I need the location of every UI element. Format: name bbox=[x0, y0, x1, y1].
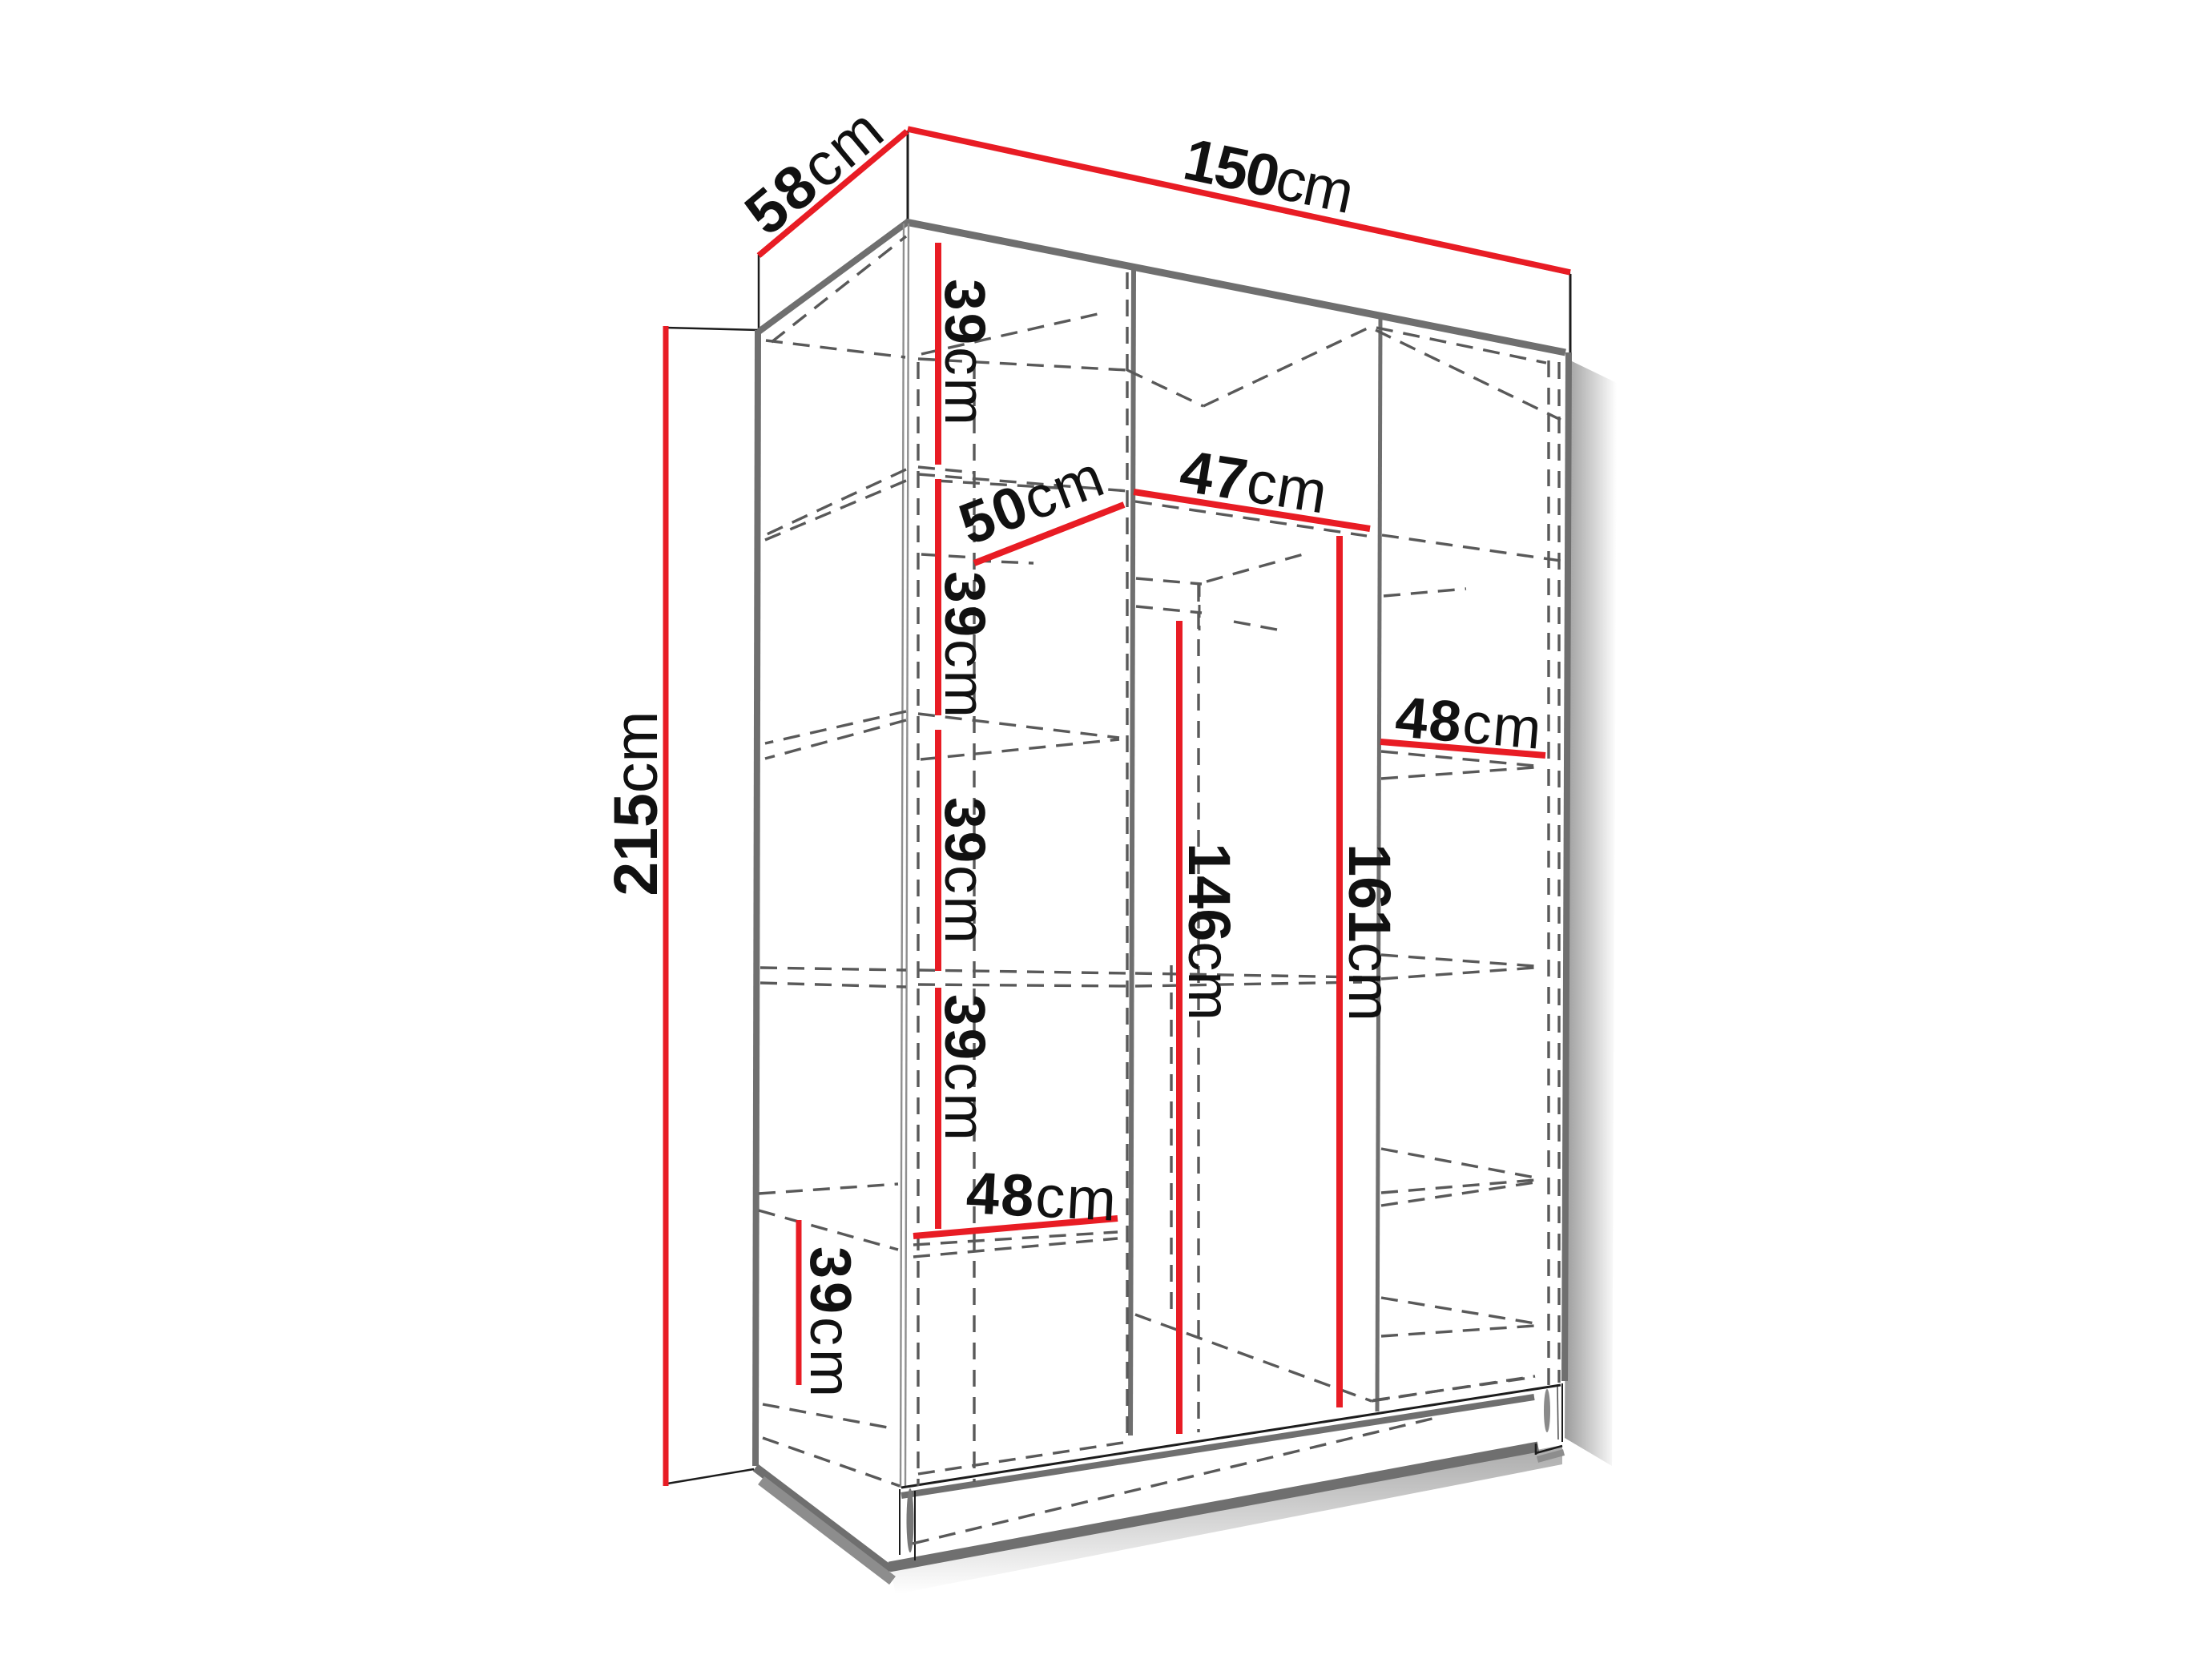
svg-text:48cm: 48cm bbox=[965, 1159, 1119, 1234]
svg-text:146cm: 146cm bbox=[1176, 843, 1243, 1021]
svg-text:39cm: 39cm bbox=[933, 571, 996, 720]
svg-text:161cm: 161cm bbox=[1336, 844, 1403, 1021]
svg-text:39cm: 39cm bbox=[798, 1246, 862, 1400]
svg-text:39cm: 39cm bbox=[933, 994, 996, 1143]
svg-text:39cm: 39cm bbox=[933, 279, 996, 428]
svg-text:39cm: 39cm bbox=[933, 797, 996, 946]
svg-text:215cm: 215cm bbox=[602, 711, 671, 896]
svg-text:48cm: 48cm bbox=[1393, 685, 1545, 762]
